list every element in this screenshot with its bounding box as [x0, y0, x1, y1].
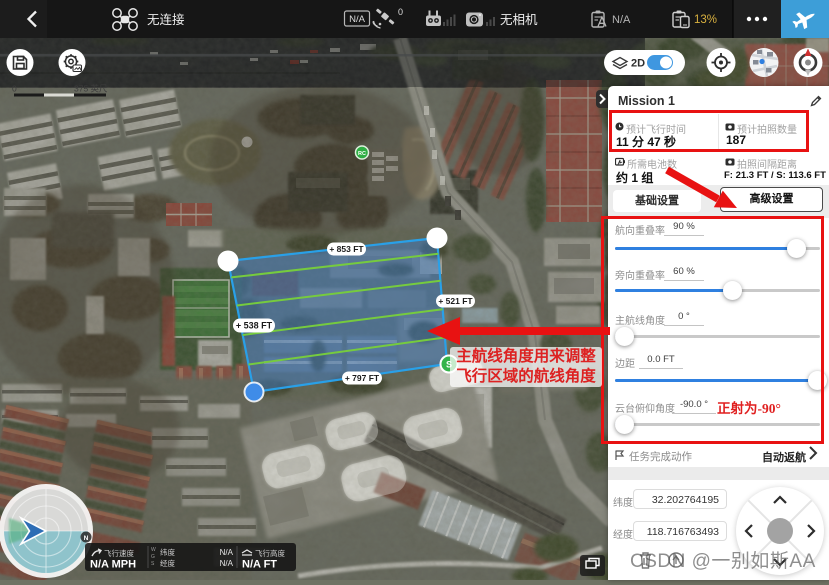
svg-text:G: G [151, 554, 155, 560]
svg-text:N/A: N/A [349, 14, 366, 25]
svg-text:W: W [151, 547, 156, 553]
svg-text:N/A FT: N/A FT [242, 559, 277, 571]
svg-text:经度: 经度 [160, 558, 175, 568]
svg-text:无连接: 无连接 [147, 12, 185, 27]
svg-text:S: S [446, 360, 452, 370]
svg-text:RC: RC [358, 151, 366, 157]
svg-text:N: N [84, 535, 89, 542]
svg-text:N/A: N/A [220, 559, 234, 568]
svg-text:N/A: N/A [612, 14, 631, 26]
svg-text:+ 538 FT: + 538 FT [236, 321, 273, 331]
svg-text:+ 797 FT: + 797 FT [345, 373, 380, 383]
svg-text:飞行高度: 飞行高度 [255, 548, 285, 558]
svg-text:N/A: N/A [220, 548, 234, 557]
svg-text:2D: 2D [631, 58, 645, 70]
svg-text:+ 521 FT: + 521 FT [438, 296, 473, 306]
svg-text:0: 0 [12, 84, 17, 94]
svg-text:375 英尺: 375 英尺 [74, 84, 108, 94]
svg-text:13%: 13% [694, 14, 717, 26]
svg-text:N/A MPH: N/A MPH [90, 559, 136, 571]
svg-text:飞行速度: 飞行速度 [104, 548, 134, 558]
svg-text:+ 853 FT: + 853 FT [329, 244, 364, 254]
svg-text:纬度: 纬度 [160, 547, 175, 557]
svg-text:无相机: 无相机 [500, 13, 538, 27]
svg-text:0: 0 [398, 7, 403, 17]
